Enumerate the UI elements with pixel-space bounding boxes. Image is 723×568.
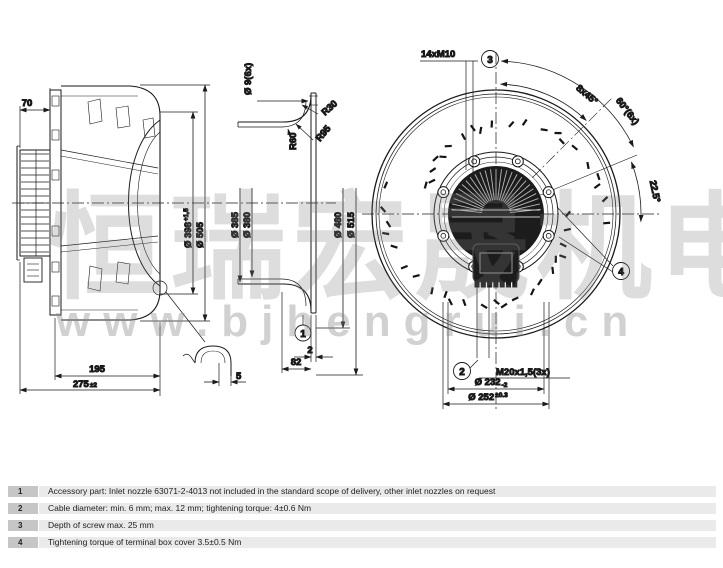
note-row-2: 2 Cable diameter: min. 6 mm; max. 12 mm;… bbox=[8, 503, 716, 514]
dim-480-label: Ø 480 bbox=[333, 212, 344, 238]
angle-22-5-label: 22.5° bbox=[647, 179, 662, 203]
r60-label: R60 bbox=[288, 133, 299, 150]
notes-table: 1 Accessory part: Inlet nozzle 63071-2-4… bbox=[8, 486, 716, 554]
note-row-1: 1 Accessory part: Inlet nozzle 63071-2-4… bbox=[8, 486, 716, 497]
dim-82-label: 82 bbox=[291, 357, 302, 368]
note-ref-1: 1 bbox=[300, 329, 306, 340]
note-ref-2: 2 bbox=[459, 367, 465, 378]
motor-body bbox=[17, 146, 50, 282]
drawing-page: 70 Ø 398+1,5 Ø 505 195 275±2 bbox=[0, 0, 723, 568]
r30-label: R30 bbox=[320, 98, 340, 118]
side-view: 70 Ø 398+1,5 Ø 505 195 275±2 bbox=[12, 85, 246, 396]
r95-label: R95 bbox=[314, 123, 334, 144]
note-number: 4 bbox=[8, 537, 38, 548]
note-text: Depth of screw max. 25 mm bbox=[39, 520, 716, 531]
note-text: Cable diameter: min. 6 mm; max. 12 mm; t… bbox=[39, 503, 716, 514]
detail-dim-5-label: 5 bbox=[236, 371, 242, 382]
edge-detail bbox=[153, 281, 246, 386]
technical-drawing: 70 Ø 398+1,5 Ø 505 195 275±2 bbox=[0, 0, 723, 480]
dim-275-label: 275±2 bbox=[73, 379, 97, 390]
blade-tab bbox=[116, 262, 130, 284]
note-number: 2 bbox=[8, 503, 38, 514]
inlet-nozzle-section: Ø 9(6x) R30 R95 R60 Ø 385 Ø 380 Ø 480 Ø … bbox=[226, 63, 363, 375]
note-text: Tightening torque of terminal box cover … bbox=[39, 537, 716, 548]
blade-tab bbox=[116, 106, 130, 128]
note-row-4: 4 Tightening torque of terminal box cove… bbox=[8, 537, 716, 548]
dim-505-label: Ø 505 bbox=[195, 221, 206, 248]
gland-label: M20x1,5(3x) bbox=[496, 367, 550, 378]
motor-hub bbox=[438, 156, 554, 287]
dim-70-label: 70 bbox=[22, 98, 33, 109]
dim-70 bbox=[20, 88, 50, 148]
note-text: Accessory part: Inlet nozzle 63071-2-401… bbox=[39, 486, 716, 497]
dim-252-label: Ø 252±0.3 bbox=[468, 392, 508, 403]
blade-tab bbox=[143, 118, 155, 138]
dim-380-label: Ø 380 bbox=[242, 212, 253, 238]
note-number: 1 bbox=[8, 486, 38, 497]
note-ref-3: 3 bbox=[487, 55, 493, 66]
angle-60-label: 60°(6x) bbox=[613, 96, 641, 127]
motor-fins bbox=[21, 154, 49, 252]
dim-515-label: Ø 515 bbox=[346, 211, 357, 238]
dim-385-label: Ø 385 bbox=[230, 211, 241, 238]
mounting-plate bbox=[50, 90, 61, 315]
note-ref-4: 4 bbox=[618, 267, 624, 278]
holes-label: Ø 9(6x) bbox=[243, 63, 254, 95]
dim-195-label: 195 bbox=[89, 364, 106, 375]
note-row-3: 3 Depth of screw max. 25 mm bbox=[8, 520, 716, 531]
front-view: 14xM10 3 8x45° 60°(6x) 22.5° 2 M20x1,5(3… bbox=[362, 49, 662, 410]
blade-tab bbox=[88, 266, 102, 291]
dim-2-label: 2 bbox=[307, 345, 312, 356]
dim-398-label: Ø 398+1,5 bbox=[183, 208, 194, 248]
terminal-box-teeth bbox=[475, 281, 517, 287]
dim-195 bbox=[55, 318, 160, 396]
dim-232-label: Ø 232-2 bbox=[475, 377, 508, 389]
note-number: 3 bbox=[8, 520, 38, 531]
blade-tab bbox=[88, 99, 102, 124]
bolt-callout-label: 14xM10 bbox=[421, 49, 455, 60]
angle-8x45-label: 8x45° bbox=[574, 83, 600, 108]
